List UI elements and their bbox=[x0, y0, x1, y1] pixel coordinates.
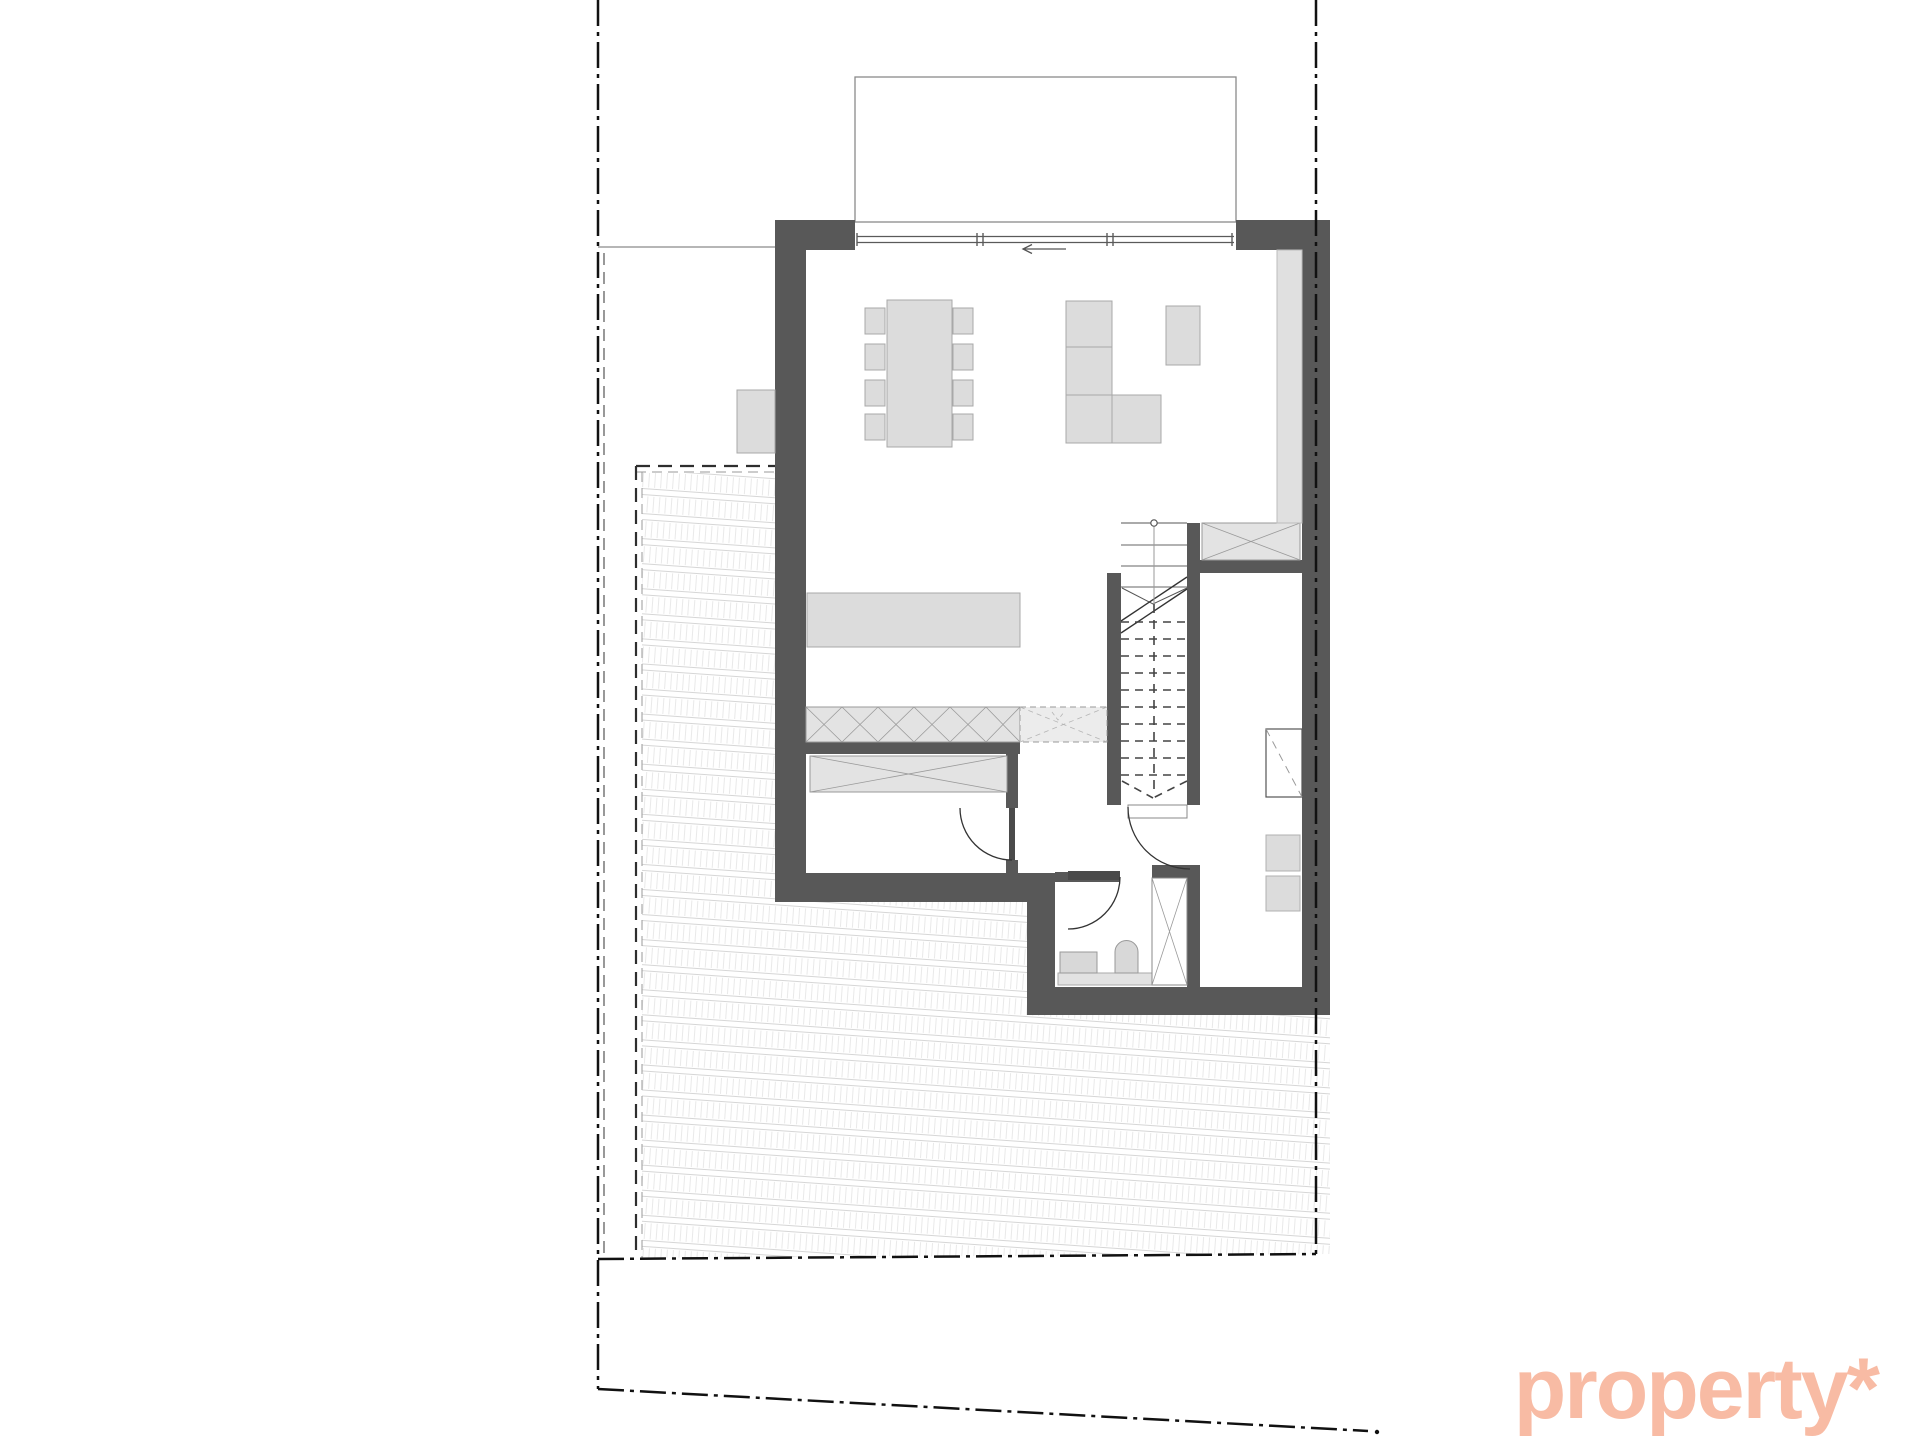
stair-top-cabinet bbox=[1202, 523, 1300, 560]
boundary-street-end-dot bbox=[1375, 1430, 1379, 1434]
hall-bench bbox=[1266, 835, 1300, 871]
floor-plan-canvas bbox=[0, 0, 1920, 1440]
sofa-module bbox=[1112, 395, 1161, 443]
toilet bbox=[1115, 941, 1138, 974]
partition-living bbox=[805, 742, 1020, 754]
kitchen-counter-dashed-extension bbox=[1020, 707, 1107, 742]
sofa-module bbox=[1066, 347, 1112, 395]
shower-shaft bbox=[1152, 878, 1187, 985]
partition-jamb bbox=[1006, 754, 1018, 808]
kitchen-island bbox=[807, 593, 1020, 647]
armchair bbox=[1166, 306, 1200, 365]
sofa-module bbox=[1066, 301, 1112, 347]
property-logo: property* bbox=[1514, 1346, 1878, 1432]
wall-left bbox=[775, 220, 806, 902]
partition-bath-right bbox=[1187, 865, 1200, 987]
sofa-module bbox=[1066, 395, 1112, 443]
hall-bench bbox=[1266, 876, 1300, 911]
partition-stub bbox=[1006, 860, 1018, 873]
bathroom-counter bbox=[1058, 973, 1152, 985]
wall-step bbox=[1027, 873, 1055, 1015]
wardrobe bbox=[810, 756, 1007, 792]
dining-chair bbox=[865, 380, 885, 406]
wall-bottom bbox=[1027, 987, 1330, 1015]
stair-band bbox=[1200, 560, 1302, 573]
dining-chair bbox=[953, 380, 973, 406]
floor-plan-svg bbox=[0, 0, 1920, 1440]
wall-bottom-left bbox=[775, 873, 1055, 902]
dining-chair bbox=[865, 344, 885, 370]
stair-threshold bbox=[1128, 805, 1187, 818]
dining-chair bbox=[953, 308, 973, 334]
bathroom-sink bbox=[1060, 952, 1097, 973]
dining-chair bbox=[953, 414, 973, 440]
dining-chair bbox=[865, 308, 885, 334]
stair-start-node bbox=[1151, 520, 1157, 526]
partition-bath-stub bbox=[1152, 865, 1187, 878]
kitchen-counter-row bbox=[806, 707, 1020, 742]
stair-wall-left bbox=[1107, 573, 1121, 805]
dining-table bbox=[887, 300, 952, 447]
dining-chair bbox=[865, 414, 885, 440]
stair-wall-right bbox=[1187, 523, 1200, 805]
sideboard-strip bbox=[1277, 250, 1302, 523]
dining-chair bbox=[953, 344, 973, 370]
hall-cabinet bbox=[1266, 729, 1302, 797]
exterior-planter bbox=[737, 390, 775, 453]
